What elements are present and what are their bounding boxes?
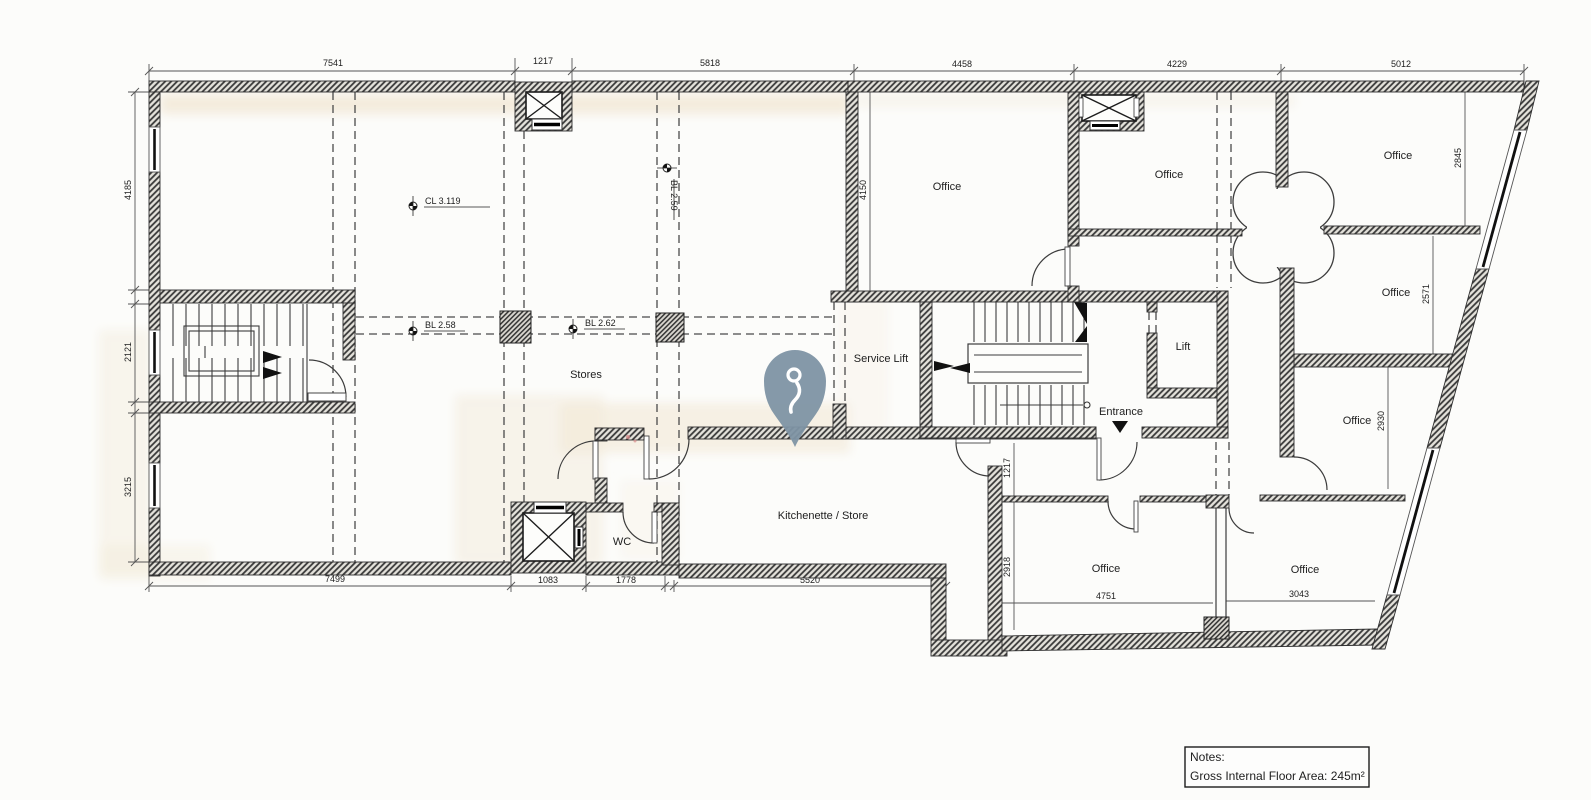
svg-text:Office: Office	[1343, 415, 1372, 427]
svg-text:Office: Office	[933, 181, 962, 193]
svg-text:1217: 1217	[1002, 458, 1012, 478]
svg-text:BL 2.58: BL 2.58	[425, 320, 456, 330]
svg-text:Kitchenette / Store: Kitchenette / Store	[778, 510, 869, 522]
svg-text:Office: Office	[1092, 563, 1121, 575]
svg-text:2121: 2121	[123, 342, 133, 362]
svg-text:2845: 2845	[1453, 148, 1463, 168]
svg-text:5012: 5012	[1391, 59, 1411, 69]
svg-text:2918: 2918	[1002, 557, 1012, 577]
svg-text:Office: Office	[1155, 169, 1184, 181]
svg-text:5818: 5818	[700, 58, 720, 68]
svg-text:1217: 1217	[533, 56, 553, 66]
svg-text:3043: 3043	[1289, 589, 1309, 599]
svg-text:4150: 4150	[858, 180, 868, 200]
svg-text:2571: 2571	[1421, 284, 1431, 304]
svg-text:Service Lift: Service Lift	[854, 353, 908, 365]
svg-text:7541: 7541	[323, 58, 343, 68]
svg-text:2930: 2930	[1376, 411, 1386, 431]
svg-text:Office: Office	[1384, 150, 1413, 162]
svg-text:CL 3.119: CL 3.119	[425, 196, 461, 206]
svg-text:1778: 1778	[616, 575, 636, 585]
svg-text:4185: 4185	[123, 180, 133, 200]
svg-text:Notes:: Notes:	[1190, 750, 1225, 764]
svg-text:BL 2.62: BL 2.62	[585, 318, 616, 328]
svg-text:Lift: Lift	[1176, 341, 1191, 353]
svg-text:Entrance: Entrance	[1099, 406, 1143, 418]
svg-text:4458: 4458	[952, 59, 972, 69]
svg-text:Office: Office	[1382, 287, 1411, 299]
svg-text:1083: 1083	[538, 575, 558, 585]
svg-text:Office: Office	[1291, 564, 1320, 576]
svg-text:3215: 3215	[123, 477, 133, 497]
svg-text:7499: 7499	[325, 574, 345, 584]
svg-text:4751: 4751	[1096, 591, 1116, 601]
svg-text:Stores: Stores	[570, 369, 602, 381]
svg-text:4229: 4229	[1167, 59, 1187, 69]
svg-text:Gross Internal Floor Area: 245: Gross Internal Floor Area: 245m²	[1190, 769, 1365, 783]
svg-text:WC: WC	[613, 536, 631, 548]
